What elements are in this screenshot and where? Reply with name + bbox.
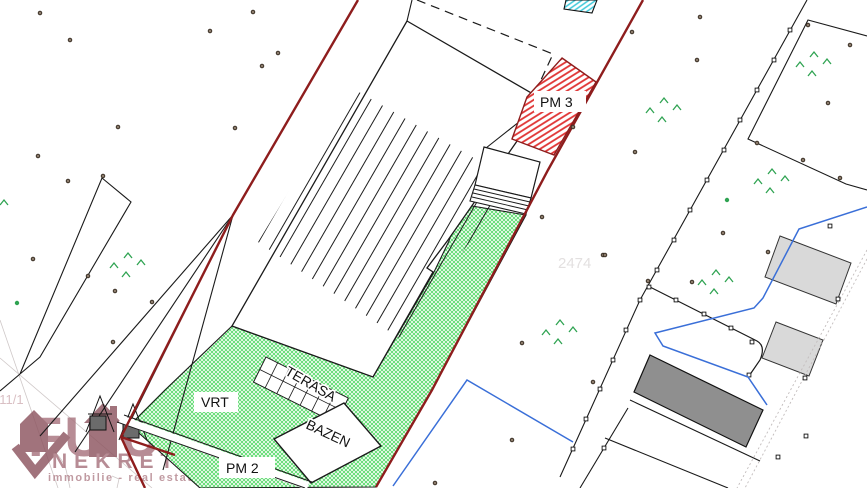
parcel-number-left: 411/1 [0, 392, 24, 407]
tree-symbol [15, 301, 19, 305]
parcel-number-2474: 2474 [558, 255, 591, 272]
pm2-label: PM 2 [226, 460, 259, 476]
site-plan: 2474 411/1 FU URA NEKRETNINE immobilie -… [0, 0, 867, 488]
pm3-label: PM 3 [540, 94, 573, 110]
tree-symbol [725, 198, 729, 202]
vrt-label: VRT [201, 394, 229, 410]
site-plan-drawing: 2474 411/1 FU URA NEKRETNINE immobilie -… [0, 0, 867, 488]
